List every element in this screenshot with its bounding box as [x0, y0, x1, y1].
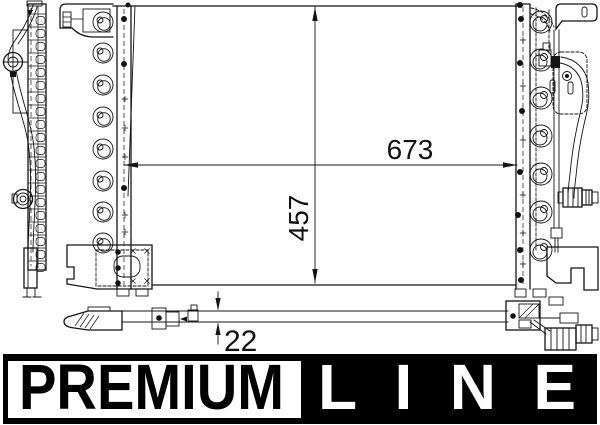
height-dimension-label: 457 [283, 195, 314, 242]
premium-line-logo: PREMIUM LINE [3, 351, 597, 424]
right-tank [515, 2, 549, 297]
bottom-center-fittings [152, 305, 198, 329]
left-tank [115, 3, 135, 290]
height-dimension: 457 [283, 7, 318, 283]
depth-dimension: 22 [215, 292, 257, 358]
top-left-bracket [60, 4, 113, 37]
front-view [60, 2, 598, 297]
bottom-left-bracket [67, 245, 152, 296]
bottom-view [64, 297, 598, 350]
width-dimension: 673 [124, 134, 517, 168]
service-valve [558, 188, 598, 207]
condenser-technical-drawing: 673 457 22 PREMIUM LINE [0, 0, 600, 425]
bottom-right-bracket [547, 247, 598, 290]
bottom-left-mount [64, 307, 122, 330]
logo-premium-text: PREMIUM [19, 351, 284, 423]
bottom-right-fittings [506, 297, 598, 350]
side-view [3, 1, 46, 297]
width-dimension-label: 673 [387, 134, 434, 165]
